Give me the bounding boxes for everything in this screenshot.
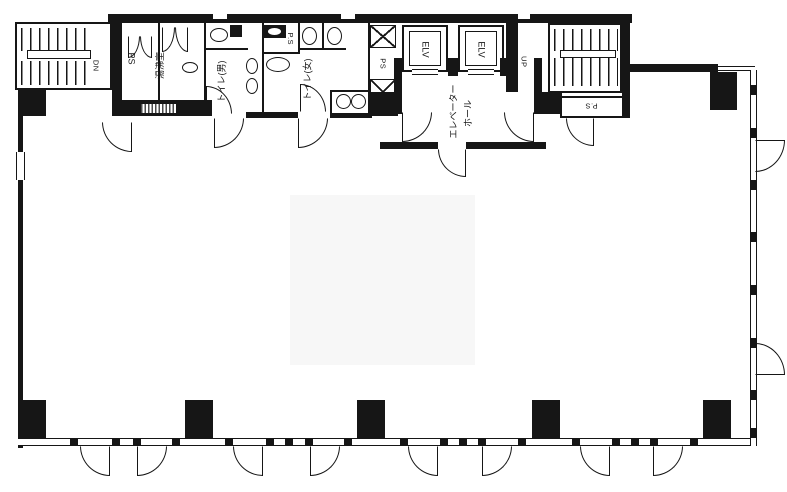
door-arc (298, 118, 328, 148)
elevator-pier (448, 58, 458, 76)
column-top-left (18, 88, 46, 116)
vanity-basin (351, 94, 366, 109)
mullion-tick (344, 439, 352, 445)
mullion-tick (690, 439, 698, 445)
core-top-wall (108, 14, 632, 23)
door-arc (755, 140, 785, 172)
urinal-fixture (246, 58, 258, 74)
mullion-tick (650, 439, 658, 445)
door-arc (755, 343, 785, 375)
stair-up-label: UP (517, 48, 531, 76)
mullion-tick (750, 180, 757, 190)
mullion-tick (459, 439, 467, 445)
door-arc (310, 446, 340, 476)
ps-small-label: P.S (283, 26, 297, 52)
door-arc (214, 118, 244, 148)
elevator-hall-label-1: エレベーター (447, 76, 461, 146)
left-wall (18, 88, 23, 448)
hall-bottom-wall-left (380, 142, 438, 149)
sink-fixture (182, 62, 198, 73)
door-arc (566, 118, 594, 146)
mullion-tick (478, 439, 486, 445)
door-arc (653, 446, 683, 476)
elevator-door-2 (468, 69, 494, 75)
door-arc (80, 446, 110, 476)
internal-staircase (548, 23, 622, 93)
mullion-tick (750, 128, 757, 138)
cistern-fixture (230, 25, 242, 37)
elevator-1-label: ELV (418, 34, 432, 64)
door-arc (233, 446, 263, 476)
mullion-tick (225, 439, 233, 445)
mullion-tick (750, 285, 757, 295)
toilet-fixture (210, 28, 228, 42)
mullion-tick (518, 439, 526, 445)
mullion-tick (400, 439, 408, 445)
stair-treads (554, 58, 618, 86)
hall-bottom-wall-right (466, 142, 546, 149)
mullion-tick (750, 85, 757, 95)
top-right-wall (630, 64, 718, 72)
mullion-tick (631, 439, 639, 445)
stair-rail (27, 50, 91, 59)
toilet-fixture (302, 27, 317, 45)
urinal-fixture (246, 78, 258, 94)
mullion-tick (750, 232, 757, 242)
stair-treads (554, 29, 618, 51)
mullion-tick (612, 439, 620, 445)
top-wall-notch (516, 14, 530, 19)
mullion-tick (172, 439, 180, 445)
kitchenette-label: 湯沸室 (152, 34, 168, 96)
mullion-tick (440, 439, 448, 445)
duct-shaft (370, 79, 396, 105)
mullion-tick (112, 439, 120, 445)
elevator-door-1 (412, 69, 438, 75)
top-wall-notch (213, 14, 227, 19)
mullion-tick (750, 428, 757, 438)
sink-fixture (266, 57, 290, 72)
scan-artifact (290, 195, 475, 365)
floor-plan: DN PS 湯沸室 トイレ(男) P.S トイレ(女) (0, 0, 787, 492)
mullion-tick (572, 439, 580, 445)
mullion-tick (750, 390, 757, 400)
mullion-tick (133, 439, 141, 445)
ps-bottom-label: P.S (576, 98, 606, 114)
bottom-window-wall (18, 438, 757, 446)
stair-treads (21, 61, 91, 85)
door-arc (580, 446, 610, 476)
door-arc (408, 446, 438, 476)
column-top-right (710, 72, 737, 110)
external-stair-dn-label: DN (88, 48, 104, 84)
mullion-tick (305, 439, 313, 445)
elevator-hall-label-2: ホール (461, 92, 475, 134)
stair-dn-label: DN (531, 52, 545, 80)
ps-shaft-label: PS (376, 50, 390, 78)
top-wall-notch (341, 14, 355, 19)
door-arc (482, 446, 512, 476)
mullion-tick (266, 439, 274, 445)
door-arc (137, 446, 167, 476)
door-arc (102, 122, 132, 152)
stair-corner-chunk (534, 92, 562, 114)
mullion-tick (70, 439, 78, 445)
mullion-tick (285, 439, 293, 445)
stall-divider (322, 23, 324, 50)
stair-rail (560, 50, 616, 58)
vanity-basin (336, 94, 351, 109)
elevator-2-label: ELV (474, 34, 488, 64)
stair-treads (21, 28, 91, 51)
slop-sink-bowl (267, 27, 282, 36)
toilet-fixture (327, 27, 342, 45)
duct-shaft (370, 25, 396, 48)
